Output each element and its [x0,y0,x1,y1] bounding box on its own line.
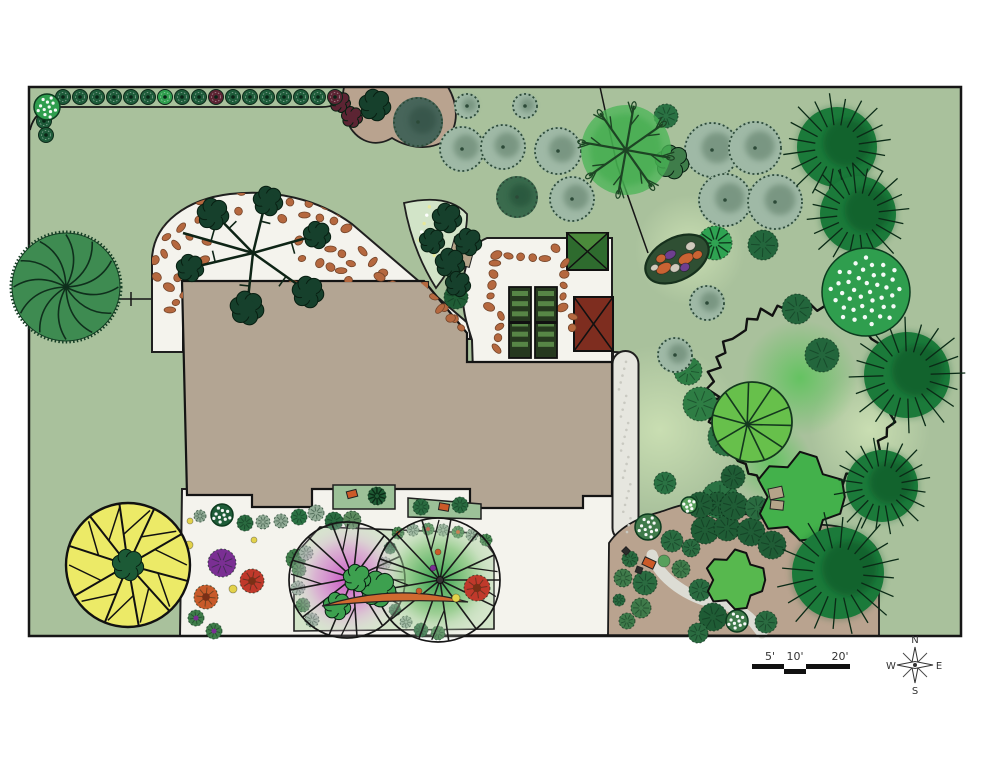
hedge-shrub-symbol [243,90,258,105]
hedge-shrub-symbol [158,90,173,105]
hedge-shrub-symbol [328,90,343,105]
hedge-shrub-symbol [311,90,326,105]
shrub-symbol [619,613,635,629]
compass-south-label: S [912,686,918,697]
swirl-tree-symbol [11,232,121,342]
flower-dot-symbol [229,585,237,593]
hedge-shrub-symbol [294,90,309,105]
shrub-symbol [413,499,429,515]
flower-dot-symbol [658,555,670,567]
deciduous-tree-symbol [712,382,792,462]
east-path [613,351,639,541]
raised-vegetable-bed [535,287,557,358]
shrub-symbol [291,509,307,525]
shrub-symbol [256,515,270,529]
hedge-shrub-symbol [39,128,54,143]
scale-label-20: 20' [831,650,848,663]
conifer-sage-symbol [689,285,725,321]
hedge-shrub-symbol [260,90,275,105]
shrub-symbol [208,549,236,577]
shrub-symbol [631,598,651,618]
shrub-symbol [452,497,468,513]
shrub-symbol [237,515,253,531]
conifer-sage-symbol [534,127,582,175]
hedge-shrub-symbol [277,90,292,105]
shrub-symbol [721,465,745,489]
conifer-sage-symbol [439,126,485,172]
flower-dot-symbol [430,565,436,571]
conifer-sage-symbol [496,176,538,218]
hedge-shrub-symbol [107,90,122,105]
scale-segment [752,664,784,669]
hedge-shrub-symbol [192,90,207,105]
hedge-shrub-symbol [175,90,190,105]
conifer-sage-symbol [512,93,538,119]
conifer-sage-symbol [480,124,526,170]
conifer-sage-symbol [728,121,782,175]
hedge-shrub-symbol [226,90,241,105]
compass-east-label: E [936,661,942,672]
shrub-symbol [188,610,204,626]
scale-bar: 5' 10' 20' [752,650,850,674]
scale-label-10: 10' [786,650,803,663]
garden-object [770,500,784,510]
garden-object [635,566,643,574]
scale-segment [784,669,806,674]
shrub-symbol [194,585,218,609]
shrub-symbol [654,472,676,494]
scale-label-5: 5' [765,650,775,663]
hedge-shrub-symbol [124,90,139,105]
shrub-symbol [805,338,839,372]
hedge-shrub-symbol [90,90,105,105]
conifer-sage-symbol [657,337,693,373]
conifer-sage-symbol [698,173,752,227]
raised-vegetable-bed [509,287,531,358]
shrub-symbol [308,505,324,521]
corner-speckled-shrub [34,94,60,120]
shrub-symbol [368,487,386,505]
shrub-symbol [464,575,490,601]
shrub-symbol [240,569,264,593]
shrub-symbol [748,230,778,260]
conifer-sage-symbol [747,174,803,230]
compass-rose-icon: N E S W [886,635,942,697]
shrub-symbol [720,492,748,520]
garden-object [438,503,449,512]
compass-north-label: N [911,635,918,646]
hedge-shrub-symbol [73,90,88,105]
shrub-symbol [755,611,777,633]
shrub-symbol [758,531,786,559]
yellow-tree-symbol [66,503,190,627]
speckled-shrub-symbol [726,610,748,632]
hedge-shrub-symbol [141,90,156,105]
flower-dot-symbol [452,594,460,602]
flower-dot-symbol [187,518,193,524]
landscape-plan-page: 5' 10' 20' N E S W [0,0,1000,773]
speckled-shrub-symbol [211,504,233,526]
garden-structure-red [574,297,613,351]
shrub-symbol [688,623,708,643]
flower-dot-symbol [251,537,257,543]
flower-dot-symbol [435,549,441,555]
shrub-symbol [613,594,625,606]
hedge-shrub-symbol [209,90,224,105]
shrub-symbol [274,514,288,528]
conifer-sage-symbol [549,176,595,222]
conifer-sage-symbol [454,93,480,119]
shrub-symbol [633,571,657,595]
flower-dot-symbol [416,588,422,594]
shrub-symbol [661,530,683,552]
compass-west-label: W [886,661,896,672]
shrub-symbol [782,294,812,324]
speckled-shrub-symbol [822,248,910,336]
garden-object [768,486,784,500]
garden-structure-green [567,233,608,270]
speckled-shrub-symbol [681,497,697,513]
conifer-sage-symbol [393,97,443,147]
shrub-symbol [206,623,222,639]
shrub-symbol [194,510,206,522]
landscape-plan: 5' 10' 20' N E S W [0,0,1000,773]
shrub-symbol [614,569,632,587]
speckled-shrub-symbol [635,514,661,540]
shrub-symbol [672,560,690,578]
scale-segment [806,664,850,669]
